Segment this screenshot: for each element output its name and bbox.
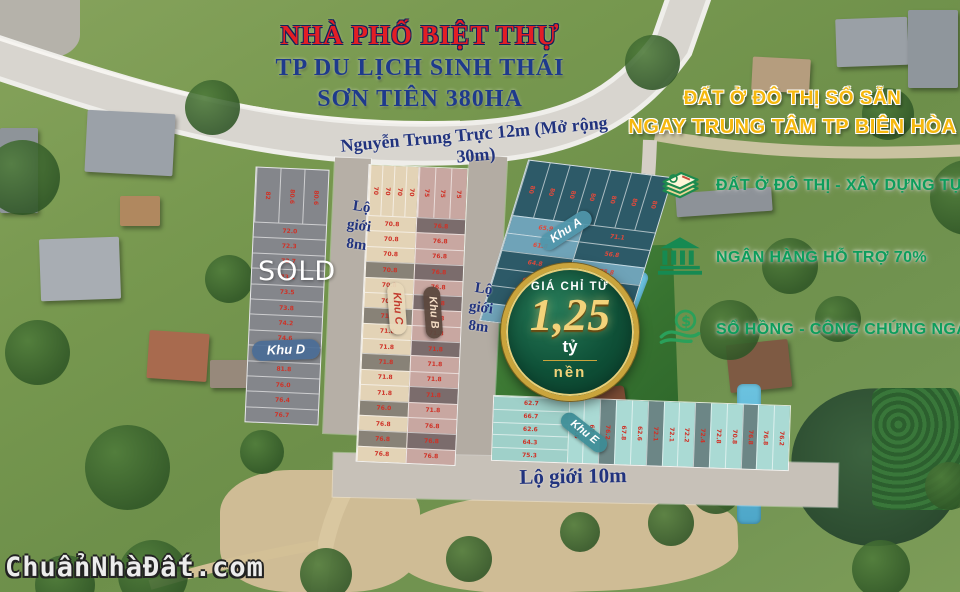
tree bbox=[205, 255, 253, 303]
title-line-1: NHÀ PHỐ BIỆT THỰ bbox=[225, 20, 615, 51]
bank-icon bbox=[658, 236, 702, 281]
plot-cell: 80.6 bbox=[278, 169, 304, 224]
plot-cell: 76.7 bbox=[245, 406, 318, 425]
roof bbox=[210, 360, 250, 388]
plot-cell: 80.6 bbox=[302, 170, 328, 225]
feature-bank-support: NGÂN HÀNG HỖ TRỢ 70% bbox=[658, 235, 960, 281]
deed-stack-icon bbox=[658, 165, 702, 208]
badge-per: nền bbox=[506, 364, 634, 381]
plot-cell: 82 bbox=[254, 168, 280, 223]
roof bbox=[146, 330, 209, 382]
tree bbox=[625, 35, 680, 90]
svg-text:$: $ bbox=[681, 313, 691, 329]
aerial-site-map: 8280.680.6 72.072.372.773.173.573.874.27… bbox=[0, 0, 960, 592]
feature-label: SỔ HỒNG - CÔNG CHỨNG NGAY bbox=[716, 321, 960, 339]
tree bbox=[85, 425, 170, 510]
badge-divider bbox=[543, 360, 597, 361]
khu-d-rows: 72.072.372.773.173.573.874.274.674.881.8… bbox=[245, 221, 326, 424]
road-label-8m-west: Lộ giới 8m bbox=[334, 195, 383, 257]
money-hand-icon: $ bbox=[658, 308, 702, 353]
right-headline: ĐẤT Ở ĐÔ THỊ SỔ SẴN NGAY TRUNG TÂM TP BI… bbox=[620, 88, 960, 139]
headline-line-2: NGAY TRUNG TÂM TP BIÊN HÒA bbox=[620, 116, 960, 139]
tree bbox=[852, 540, 910, 592]
title-line-3: SƠN TIÊN 380HA bbox=[225, 86, 615, 113]
feature-list: ĐẤT Ở ĐÔ THỊ - XÂY DỰNG TỰ DO NGÂN HÀNG bbox=[658, 163, 960, 379]
khu-b-rows: 76.876.876.876.876.876.871.871.871.871.8… bbox=[407, 217, 466, 465]
block-khu-d: 8280.680.6 72.072.372.773.173.573.874.27… bbox=[244, 167, 329, 426]
tree bbox=[240, 430, 284, 474]
sold-label: SOLD bbox=[258, 256, 368, 287]
feature-label: ĐẤT Ở ĐÔ THỊ - XÂY DỰNG TỰ DO bbox=[716, 177, 960, 195]
badge-price: 1,25 bbox=[506, 293, 634, 337]
plot-cell: 75 bbox=[449, 169, 467, 220]
khu-e-left-rows: 62.766.762.664.375.3 bbox=[492, 396, 569, 463]
road-label-10m: Lộ giới 10m bbox=[468, 462, 678, 491]
plot-cell: 76.8 bbox=[358, 445, 407, 462]
tree bbox=[300, 548, 352, 592]
khu-b-top-plots: 757575 bbox=[417, 167, 467, 219]
roof bbox=[120, 196, 160, 226]
headline-line-1: ĐẤT Ở ĐÔ THỊ SỔ SẴN bbox=[620, 88, 960, 110]
roof bbox=[39, 237, 121, 302]
project-title: NHÀ PHỐ BIỆT THỰ TP DU LỊCH SINH THÁI SƠ… bbox=[225, 20, 615, 113]
khu-d-top-plots: 8280.680.6 bbox=[254, 168, 328, 225]
roof bbox=[835, 17, 909, 67]
watermark: ChuẩnNhàĐất.com bbox=[5, 552, 264, 583]
feature-pink-book: $ SỔ HỒNG - CÔNG CHỨNG NGAY bbox=[658, 307, 960, 353]
block-label-khu-c: Khu C bbox=[387, 282, 408, 335]
block-label-khu-b: Khu B bbox=[423, 286, 444, 339]
feature-land-title: ĐẤT Ở ĐÔ THỊ - XÂY DỰNG TỰ DO bbox=[658, 163, 960, 209]
badge-unit: tỷ bbox=[506, 337, 634, 357]
road-label-8m-east: Lộ giới 8m bbox=[456, 277, 505, 339]
price-badge: GIÁ CHỈ TỪ 1,25 tỷ nền bbox=[501, 263, 639, 401]
roof bbox=[84, 110, 175, 177]
tree bbox=[446, 536, 492, 582]
block-label-khu-d: Khu D bbox=[252, 339, 321, 361]
plot-cell: 76.2 bbox=[772, 406, 790, 471]
tree bbox=[5, 320, 70, 385]
tree bbox=[560, 512, 600, 552]
roof bbox=[908, 10, 958, 88]
block-khu-e: 62.766.762.664.375.3 70.667.876.267.862.… bbox=[491, 395, 791, 471]
title-line-2: TP DU LỊCH SINH THÁI bbox=[225, 55, 615, 82]
feature-label: NGÂN HÀNG HỖ TRỢ 70% bbox=[716, 249, 927, 267]
plot-cell: 76.8 bbox=[407, 448, 456, 465]
tree bbox=[648, 500, 694, 546]
plot-cell: 75.3 bbox=[492, 447, 567, 462]
